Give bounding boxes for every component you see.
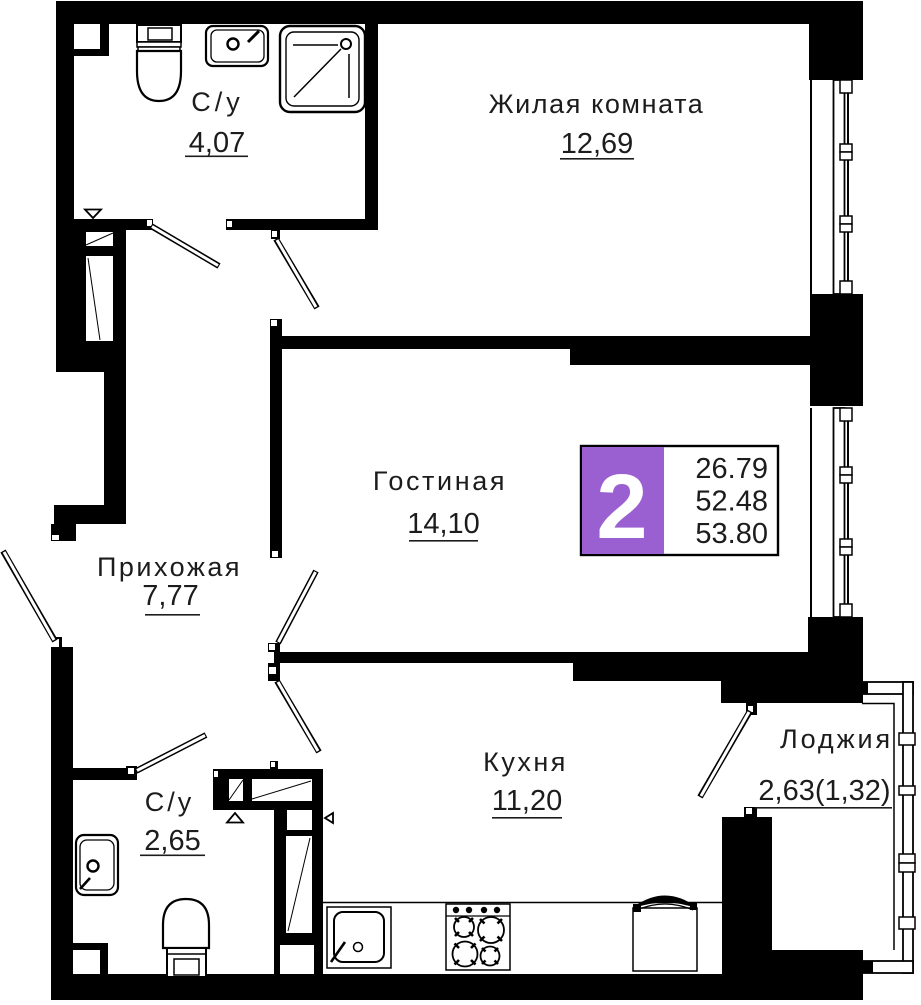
svg-text:Прихожая: Прихожая — [97, 552, 242, 582]
svg-text:2,65: 2,65 — [144, 825, 200, 857]
svg-text:26.79: 26.79 — [695, 453, 768, 485]
svg-text:52.48: 52.48 — [695, 486, 768, 518]
svg-text:С/у: С/у — [191, 87, 244, 117]
svg-text:2,63(1,32): 2,63(1,32) — [758, 775, 890, 807]
svg-text:12,69: 12,69 — [561, 128, 634, 160]
svg-text:С/у: С/у — [145, 787, 195, 817]
svg-text:53.80: 53.80 — [695, 518, 768, 550]
svg-text:Жилая комната: Жилая комната — [489, 89, 705, 119]
svg-text:2: 2 — [596, 456, 647, 558]
svg-text:7,77: 7,77 — [142, 580, 198, 612]
svg-text:11,20: 11,20 — [492, 785, 562, 817]
svg-text:Гостиная: Гостиная — [373, 466, 507, 496]
svg-text:14,10: 14,10 — [407, 508, 480, 540]
svg-text:4,07: 4,07 — [189, 127, 245, 159]
svg-text:Кухня: Кухня — [483, 747, 568, 777]
svg-text:Лоджия: Лоджия — [780, 724, 893, 754]
